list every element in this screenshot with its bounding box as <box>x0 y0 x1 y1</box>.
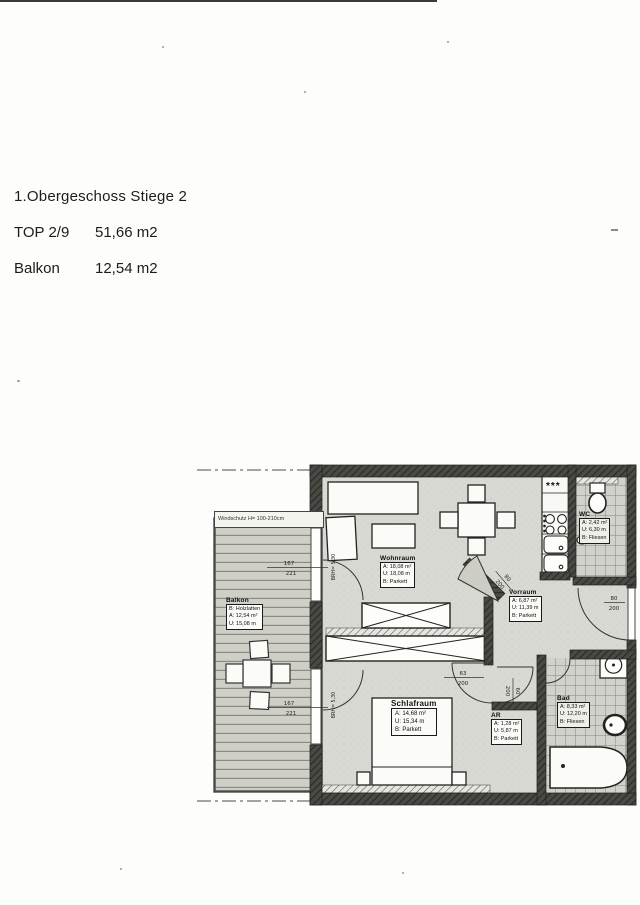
room-floor: B: Parkett <box>494 736 519 743</box>
area-row-top: TOP 2/9 51,66 m2 <box>14 224 187 241</box>
dim-text: 167 <box>284 701 295 707</box>
room-perimeter: U: 12,20 m <box>560 711 587 718</box>
balcony-door-panel <box>311 669 321 744</box>
scan-edge-artifact <box>0 0 437 2</box>
room-label-schlafraum: Schlafraum A: 14,68 m² U: 15,34 m B: Par… <box>391 699 437 736</box>
room-name: Wohnraum <box>380 555 415 562</box>
room-perimeter: U: 5,87 m <box>494 728 519 735</box>
dim-text: 221 <box>286 711 297 717</box>
room-name: Balkon <box>226 597 263 604</box>
area-row-value: 12,54 m2 <box>95 260 158 277</box>
dim-text: 80 <box>611 596 618 602</box>
room-label-vorraum: Vorraum A: 6,87 m² U: 11,39 m B: Parkett <box>509 589 542 622</box>
scan-speck <box>304 91 306 93</box>
room-floor: B: Holzlatten <box>229 606 260 613</box>
balcony-screen-note: Windschutz H= 100-210cm <box>214 511 324 528</box>
room-area: A: 8,33 m² <box>560 704 587 711</box>
room-floor: B: Parkett <box>383 579 412 586</box>
room-floor: B: Parkett <box>395 726 433 734</box>
scan-speck <box>611 229 618 231</box>
room-perimeter: U: 18,08 m <box>383 571 412 578</box>
room-name: Bad <box>557 695 590 702</box>
room-name: WC <box>579 511 610 518</box>
dim-text: 200 <box>458 681 469 687</box>
level-annotation: BRH= 5,30 <box>331 692 337 718</box>
scan-speck <box>447 41 449 43</box>
room-area: A: 1,28 m² <box>494 721 519 728</box>
room-area: A: 12,54 m² <box>229 613 260 620</box>
toilet-icon <box>604 715 626 735</box>
dim-text: 221 <box>286 571 297 577</box>
toilet-tank-icon <box>590 483 605 493</box>
stove-icon: *** <box>546 481 561 492</box>
room-perimeter: U: 15,34 m <box>395 718 433 726</box>
area-row-label: TOP 2/9 <box>14 224 95 241</box>
dim-text: 60 <box>514 688 520 695</box>
bathtub-icon <box>550 747 627 788</box>
plan-header: 1.Obergeschoss Stiege 2 TOP 2/9 51,66 m2… <box>14 188 187 277</box>
level-annotation: BRH= 5,30 <box>331 554 337 580</box>
room-label-wc: WC A: 2,42 m² U: 6,30 m B: Fliesen <box>579 511 610 544</box>
scan-speck <box>17 380 20 382</box>
scan-speck <box>120 868 122 870</box>
room-area: A: 2,42 m² <box>582 520 607 527</box>
dim-text: 200 <box>504 686 510 697</box>
room-label-bad: Bad A: 8,33 m² U: 12,20 m B: Fliesen <box>557 695 590 728</box>
room-floor: B: Parkett <box>512 613 539 620</box>
room-perimeter: U: 11,39 m <box>512 605 539 612</box>
room-name: Vorraum <box>509 589 542 596</box>
area-row-label: Balkon <box>14 260 95 277</box>
room-perimeter: U: 6,30 m <box>582 527 607 534</box>
kitchen-unit: *** <box>542 472 570 577</box>
room-name: Schlafraum <box>391 699 437 708</box>
balcony-door-panel <box>311 528 321 601</box>
scanned-floorplan-page: 1.Obergeschoss Stiege 2 TOP 2/9 51,66 m2… <box>0 0 640 905</box>
floorplan-drawing: *** <box>195 455 640 815</box>
entry-door-panel <box>628 588 635 640</box>
room-label-ar: AR A: 1,28 m² U: 5,87 m B: Parkett <box>491 712 522 745</box>
toilet-icon <box>589 493 606 513</box>
scan-speck <box>402 872 404 874</box>
room-name: AR <box>491 712 522 719</box>
scan-speck <box>162 46 164 48</box>
area-row-balkon: Balkon 12,54 m2 <box>14 260 187 277</box>
room-area: A: 14,68 m² <box>395 710 433 718</box>
floorplan-svg: *** <box>195 455 640 815</box>
room-area: A: 18,08 m² <box>383 564 412 571</box>
room-perimeter: U: 15,08 m <box>229 621 260 628</box>
room-area: A: 6,87 m² <box>512 598 539 605</box>
room-floor: B: Fliesen <box>560 719 587 726</box>
area-row-value: 51,66 m2 <box>95 224 158 241</box>
room-label-balkon: Balkon B: Holzlatten A: 12,54 m² U: 15,0… <box>226 597 263 630</box>
room-label-wohnraum: Wohnraum A: 18,08 m² U: 18,08 m B: Parke… <box>380 555 415 588</box>
dim-text: 200 <box>609 606 620 612</box>
room-floor: B: Fliesen <box>582 535 607 542</box>
dim-text: 167 <box>284 561 295 567</box>
page-title: 1.Obergeschoss Stiege 2 <box>14 188 187 205</box>
dim-text: 63 <box>460 671 467 677</box>
